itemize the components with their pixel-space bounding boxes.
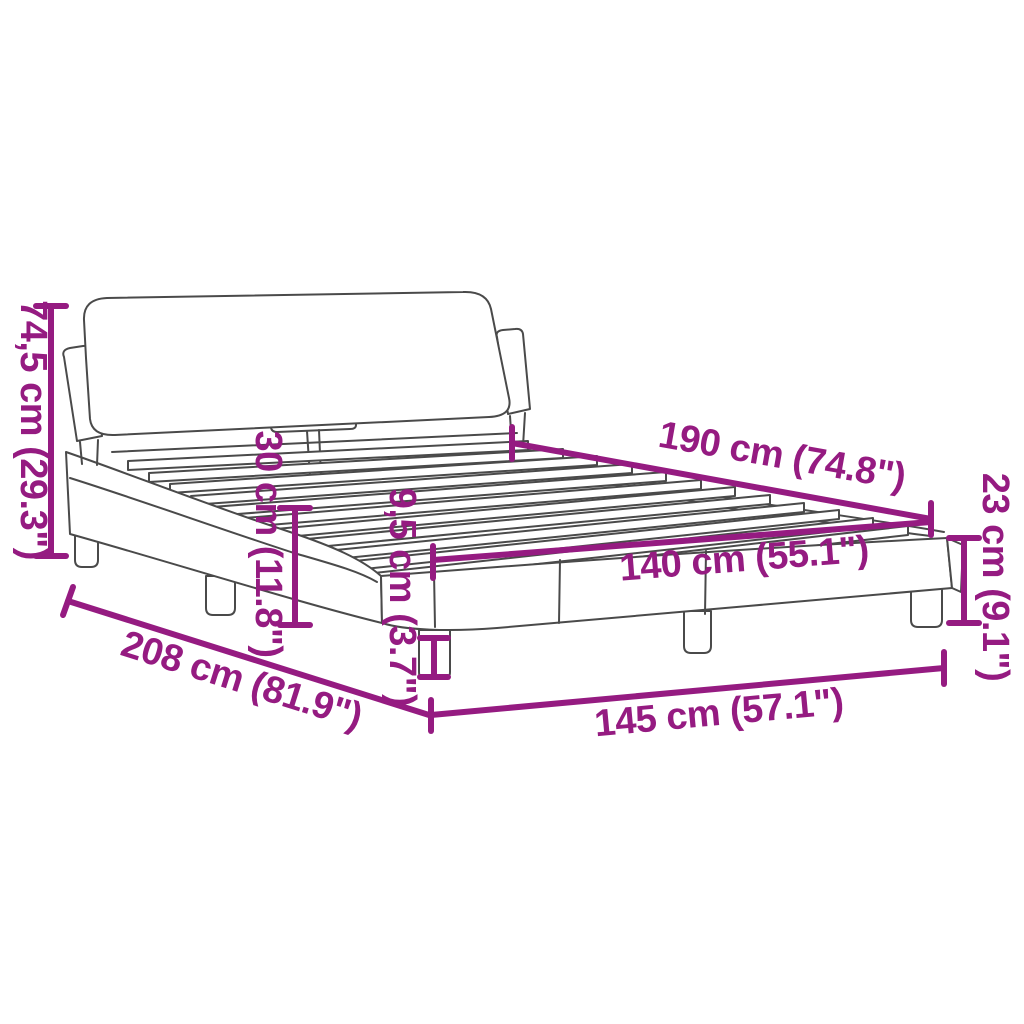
dim-total-height: 74,5 cm (29.3") [12, 300, 66, 560]
headboard-panel [84, 292, 510, 435]
diagram-svg: 74,5 cm (29.3") 30 cm (11.8") 9,5 cm (3.… [0, 0, 1024, 1024]
headboard [63, 292, 530, 465]
dim-total-width: 145 cm (57.1") [431, 652, 944, 745]
dim-label-total-height: 74,5 cm (29.3") [12, 300, 54, 560]
dim-label-leg-height: 9,5 cm (3.7") [381, 488, 423, 707]
dim-label-frame-corner-height: 23 cm (9.1") [974, 473, 1016, 681]
leg [684, 611, 711, 653]
leg [911, 588, 942, 627]
bed-dimension-diagram: 74,5 cm (29.3") 30 cm (11.8") 9,5 cm (3.… [0, 0, 1024, 1024]
dim-label-headboard-clearance: 30 cm (11.8") [247, 431, 289, 658]
